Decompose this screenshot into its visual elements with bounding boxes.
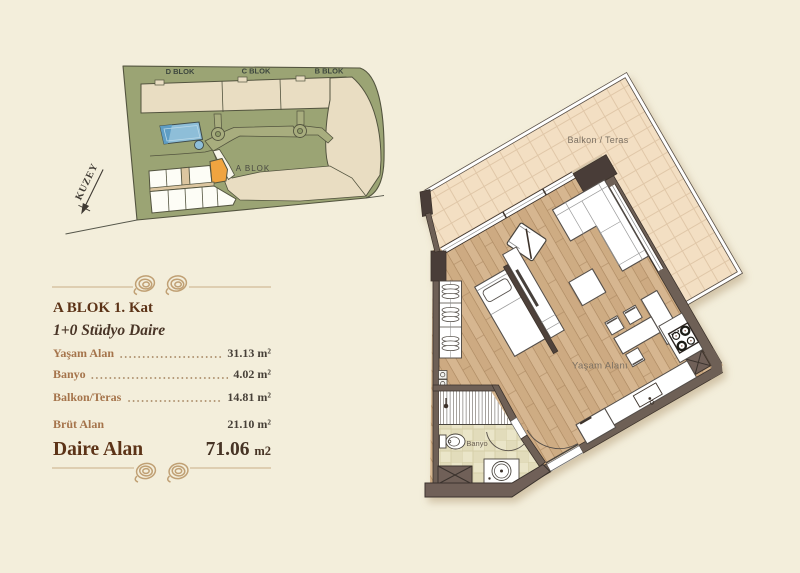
svg-text:Balkon / Teras: Balkon / Teras xyxy=(567,135,628,145)
svg-text:Banyo: Banyo xyxy=(466,439,487,448)
svg-text:Yaşam Alanı: Yaşam Alanı xyxy=(572,361,628,372)
